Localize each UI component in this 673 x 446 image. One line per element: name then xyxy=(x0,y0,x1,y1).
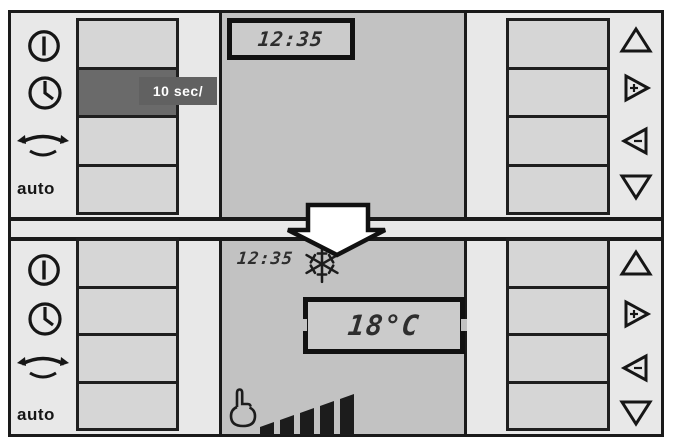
bottom-right-button-minus[interactable] xyxy=(509,333,607,381)
plus-right-triangle-icon xyxy=(618,299,654,329)
temperature-value: 18°C xyxy=(347,309,422,342)
power-icon xyxy=(25,27,63,65)
frame-notch xyxy=(461,319,467,331)
down-triangle-icon xyxy=(618,399,654,427)
top-left-button-power[interactable] xyxy=(79,21,176,67)
swing-icon xyxy=(15,129,71,159)
down-block-arrow-icon xyxy=(277,199,397,261)
auto-label: auto xyxy=(17,405,55,425)
timer-clock-icon xyxy=(25,299,65,339)
frame-notch xyxy=(301,319,307,331)
up-triangle-icon xyxy=(618,26,654,54)
controller-figure: auto 10 sec/ 12:35 xyxy=(0,0,673,446)
temperature-display-selected: 18°C xyxy=(303,297,465,354)
top-right-button-down[interactable] xyxy=(509,164,607,213)
fan-speed-bars-icon xyxy=(260,389,356,435)
time-display-selected: 12:35 xyxy=(227,18,355,60)
top-right-button-plus[interactable] xyxy=(509,67,607,116)
minus-left-triangle-icon xyxy=(618,126,654,156)
top-right-button-up[interactable] xyxy=(509,21,607,67)
timer-clock-icon xyxy=(25,73,65,113)
bottom-left-button-auto[interactable] xyxy=(79,381,176,429)
top-right-button-minus[interactable] xyxy=(509,115,607,164)
bottom-right-button-plus[interactable] xyxy=(509,286,607,334)
plus-right-triangle-icon xyxy=(618,73,654,103)
auto-label: auto xyxy=(17,179,55,199)
hint-10sec-label: 10 sec/ xyxy=(139,77,217,105)
device-frame: auto 10 sec/ 12:35 xyxy=(8,10,664,437)
power-icon xyxy=(25,251,63,289)
bottom-right-button-down[interactable] xyxy=(509,381,607,429)
swing-icon xyxy=(15,351,71,381)
top-left-button-swing[interactable] xyxy=(79,115,176,164)
bottom-right-button-stack xyxy=(506,238,610,431)
bottom-right-button-up[interactable] xyxy=(509,241,607,286)
manual-hand-icon xyxy=(226,385,260,429)
time-value: 12:35 xyxy=(257,27,325,51)
down-triangle-icon xyxy=(618,173,654,201)
bottom-left-button-stack xyxy=(76,238,179,431)
top-right-button-stack xyxy=(506,18,610,215)
top-left-button-auto[interactable] xyxy=(79,164,176,213)
bottom-left-button-timer[interactable] xyxy=(79,286,176,334)
up-triangle-icon xyxy=(618,249,654,277)
bottom-left-button-swing[interactable] xyxy=(79,333,176,381)
top-left-button-stack xyxy=(76,18,179,215)
bottom-left-button-power[interactable] xyxy=(79,241,176,286)
minus-left-triangle-icon xyxy=(618,353,654,383)
